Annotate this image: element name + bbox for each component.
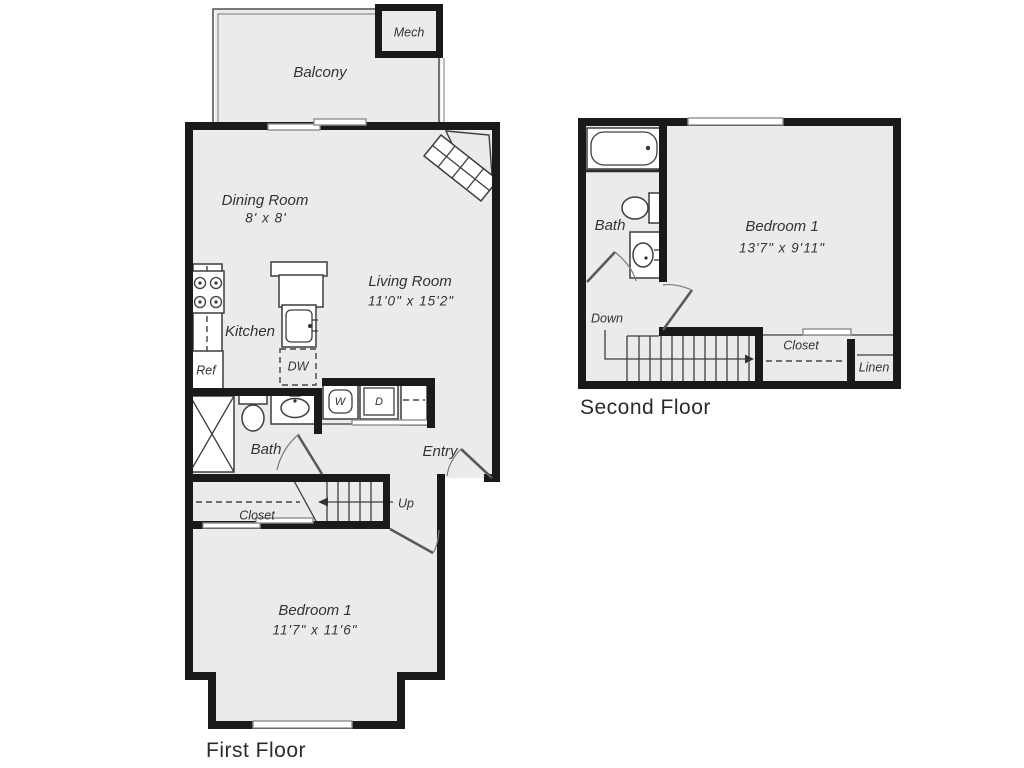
dryer-label: D (375, 396, 383, 408)
kitchen-label: Kitchen (225, 323, 275, 340)
bath-label-second: Bath (595, 217, 626, 234)
bedroom-label-second: Bedroom 1 (745, 218, 818, 235)
ref-label: Ref (196, 363, 217, 377)
bedroom-bay-window (253, 721, 352, 728)
first-floor-plan: Balcony Mech Dining Room 8' x 8' Living … (185, 4, 500, 762)
bath-sink-icon-second (630, 232, 661, 278)
bedroom-label-first: Bedroom 1 (278, 602, 351, 619)
washer-label: W (335, 396, 347, 408)
mech-label: Mech (394, 25, 425, 39)
bath-label-first: Bath (251, 441, 282, 458)
closet-label-first: Closet (239, 508, 275, 522)
kitchen-sink-icon (282, 305, 318, 347)
bedroom-dims-first: 11'7" x 11'6" (272, 623, 357, 638)
toilet-icon-first (239, 393, 267, 431)
dining-room-label: Dining Room (222, 192, 309, 209)
balcony-label: Balcony (293, 64, 348, 81)
up-label: Up (398, 496, 414, 510)
floor-plan-page: Balcony Mech Dining Room 8' x 8' Living … (0, 0, 1024, 768)
down-label: Down (591, 311, 623, 325)
bedroom-dims-second: 13'7" x 9'11" (739, 241, 825, 256)
dw-label: DW (288, 359, 310, 373)
shower-icon (190, 396, 234, 472)
second-floor-title: Second Floor (580, 396, 711, 419)
dining-room-dims: 8' x 8' (245, 211, 286, 226)
stove-icon (191, 271, 224, 313)
floor-plan: Balcony Mech Dining Room 8' x 8' Living … (0, 0, 1024, 768)
living-room-label: Living Room (368, 273, 451, 290)
second-floor-plan: Bath Bedroom 1 13'7" x 9'11" Down Closet… (578, 118, 901, 419)
laundry-bifold-door (352, 420, 430, 425)
linen-label: Linen (859, 360, 890, 374)
bedroom-window-second (688, 118, 783, 125)
first-floor-title: First Floor (206, 739, 306, 762)
bathtub-icon (587, 128, 661, 169)
entry-label: Entry (422, 443, 459, 460)
closet-label-second: Closet (783, 338, 819, 352)
living-room-dims: 11'0" x 15'2" (368, 294, 454, 309)
utility-cabinet (401, 383, 427, 425)
closet-sliding-door-second (803, 329, 851, 335)
